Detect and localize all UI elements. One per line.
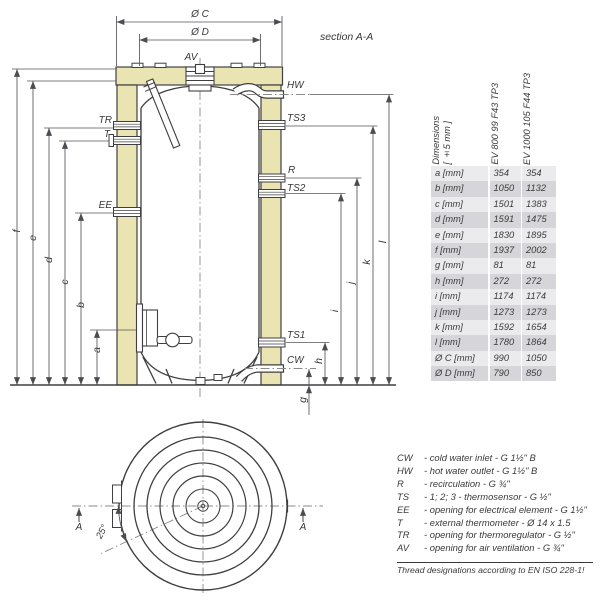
table-header-dim-line2: [ ±5 mm ] bbox=[442, 121, 452, 165]
legend-abbr: TS bbox=[397, 491, 424, 504]
table-cell: 354 bbox=[490, 166, 521, 181]
port-label-ts3: TS3 bbox=[287, 113, 305, 124]
table-header: Dimensions [ ±5 mm ] EV 800 99 F43 TP3 E… bbox=[431, 73, 557, 166]
table-cell: h [mm] bbox=[431, 274, 488, 289]
table-cell: g [mm] bbox=[431, 258, 488, 273]
av-fitting bbox=[186, 65, 214, 92]
legend-item: T- external thermometer - Ø 14 x 1.5 bbox=[397, 517, 595, 530]
legend-item: AV- opening for air ventilation - G ¾" bbox=[397, 542, 595, 555]
table-cell: Ø C [mm] bbox=[431, 351, 488, 366]
table-row: b [mm]10501132 bbox=[431, 181, 557, 196]
dim-letter-i: i bbox=[329, 304, 341, 318]
table-cell: 1864 bbox=[522, 335, 556, 350]
dim-letter-j: j bbox=[345, 276, 357, 290]
table-cell: 1780 bbox=[490, 335, 521, 350]
table-cell: a [mm] bbox=[431, 166, 488, 181]
dim-letter-a: a bbox=[91, 343, 103, 357]
legend-desc: - cold water inlet - G 1½" B bbox=[424, 452, 595, 465]
table-row: d [mm]15911475 bbox=[431, 212, 557, 227]
legend-desc: - hot water outlet - G 1½" B bbox=[424, 465, 595, 478]
table-cell: 354 bbox=[522, 166, 556, 181]
port-label-r: R bbox=[288, 165, 295, 176]
table-cell: 2002 bbox=[522, 243, 556, 258]
legend: CW- cold water inlet - G 1½" BHW- hot wa… bbox=[397, 452, 595, 575]
main-view bbox=[10, 58, 396, 400]
table-cell: k [mm] bbox=[431, 320, 488, 335]
table-cell: 272 bbox=[490, 274, 521, 289]
legend-desc: - external thermometer - Ø 14 x 1.5 bbox=[424, 517, 595, 530]
dim-label-od: Ø D bbox=[170, 27, 230, 38]
legend-desc: - opening for thermoregulator - G ½" bbox=[424, 529, 595, 542]
dim-letter-l: l bbox=[377, 235, 389, 249]
dim-letter-g: g bbox=[297, 393, 309, 407]
port-label-tr: TR bbox=[92, 115, 112, 126]
port-label-ee: EE bbox=[94, 200, 112, 211]
table-row: f [mm]19372002 bbox=[431, 243, 557, 258]
table-cell: 990 bbox=[490, 351, 521, 366]
table-row: g [mm]8181 bbox=[431, 258, 557, 273]
table-cell: 1895 bbox=[522, 228, 556, 243]
legend-abbr: AV bbox=[397, 542, 424, 555]
table-cell: 1830 bbox=[490, 228, 521, 243]
dim-letter-e: e bbox=[27, 231, 39, 245]
table-row: h [mm]272272 bbox=[431, 274, 557, 289]
port-label-cw: CW bbox=[287, 355, 304, 366]
table-cell: 1475 bbox=[522, 212, 556, 227]
table-header-model2: EV 1000 105 F44 TP3 bbox=[522, 73, 556, 170]
section-arrow-label-right: A bbox=[297, 522, 309, 533]
legend-item: CW- cold water inlet - G 1½" B bbox=[397, 452, 595, 465]
table-row: j [mm]12731273 bbox=[431, 305, 557, 320]
dimensions-table: Dimensions [ ±5 mm ] EV 800 99 F43 TP3 E… bbox=[431, 73, 557, 381]
legend-abbr: EE bbox=[397, 504, 424, 517]
table-cell: 1174 bbox=[490, 289, 521, 304]
table-cell: 790 bbox=[490, 366, 521, 381]
table-header-model1: EV 800 99 F43 TP3 bbox=[490, 73, 521, 170]
table-row: Ø C [mm]9901050 bbox=[431, 351, 557, 366]
port-label-ts2: TS2 bbox=[287, 183, 305, 194]
port-label-hw: HW bbox=[287, 80, 304, 91]
legend-desc: - recirculation - G ¾" bbox=[424, 478, 595, 491]
table-header-dim-line1: Dimensions bbox=[431, 116, 441, 165]
legend-abbr: R bbox=[397, 478, 424, 491]
table-cell: b [mm] bbox=[431, 181, 488, 196]
legend-desc: - 1; 2; 3 - thermosensor - G ½" bbox=[424, 491, 595, 504]
legend-item: EE- opening for electrical element - G 1… bbox=[397, 504, 595, 517]
table-cell: 1050 bbox=[490, 181, 521, 196]
table-row: e [mm]18301895 bbox=[431, 228, 557, 243]
table-cell: Ø D [mm] bbox=[431, 366, 488, 381]
port-label-av: AV bbox=[176, 52, 206, 63]
table-row: i [mm]11741174 bbox=[431, 289, 557, 304]
legend-item: TR- opening for thermoregulator - G ½" bbox=[397, 529, 595, 542]
port-label-t: T bbox=[98, 129, 110, 140]
legend-abbr: TR bbox=[397, 529, 424, 542]
thermometer-well bbox=[144, 79, 180, 148]
table-cell: f [mm] bbox=[431, 243, 488, 258]
table-cell: j [mm] bbox=[431, 305, 488, 320]
dimensions-table-rows: a [mm]354354b [mm]10501132c [mm]15011383… bbox=[431, 166, 557, 381]
legend-abbr: HW bbox=[397, 465, 424, 478]
electrical-element bbox=[137, 304, 193, 352]
dim-letter-k: k bbox=[361, 255, 373, 269]
table-cell: 1174 bbox=[522, 289, 556, 304]
legend-desc: - opening for air ventilation - G ¾" bbox=[424, 542, 595, 555]
table-header-dimensions: Dimensions [ ±5 mm ] bbox=[431, 73, 488, 170]
table-row: k [mm]15921654 bbox=[431, 320, 557, 335]
dim-label-oc: Ø C bbox=[170, 9, 230, 20]
table-cell: c [mm] bbox=[431, 197, 488, 212]
table-cell: 1937 bbox=[490, 243, 521, 258]
water-heater-datasheet: Ø C Ø D AV section A-A TR T EE HW TS3 R … bbox=[0, 0, 600, 600]
legend-divider bbox=[397, 562, 593, 563]
table-cell: 1132 bbox=[522, 181, 556, 196]
dim-letter-d: d bbox=[43, 253, 55, 267]
table-cell: 1273 bbox=[522, 305, 556, 320]
legend-item: HW- hot water outlet - G 1½" B bbox=[397, 465, 595, 478]
table-row: c [mm]15011383 bbox=[431, 197, 557, 212]
table-cell: 1273 bbox=[490, 305, 521, 320]
table-cell: l [mm] bbox=[431, 335, 488, 350]
section-title: section A-A bbox=[320, 31, 373, 43]
table-cell: 1050 bbox=[522, 351, 556, 366]
dim-letter-b: b bbox=[75, 298, 87, 312]
legend-footnote: Thread designations according to EN ISO … bbox=[397, 565, 595, 575]
legend-desc: - opening for electrical element - G 1½" bbox=[424, 504, 595, 517]
table-cell: e [mm] bbox=[431, 228, 488, 243]
table-cell: 81 bbox=[522, 258, 556, 273]
table-cell: d [mm] bbox=[431, 212, 488, 227]
port-label-ts1: TS1 bbox=[287, 330, 305, 341]
dim-letter-c: c bbox=[59, 275, 71, 289]
legend-abbr: T bbox=[397, 517, 424, 530]
table-cell: 81 bbox=[490, 258, 521, 273]
table-cell: 1591 bbox=[490, 212, 521, 227]
legend-abbr: CW bbox=[397, 452, 424, 465]
dim-letter-h: h bbox=[313, 354, 325, 368]
table-cell: 1592 bbox=[490, 320, 521, 335]
table-row: l [mm]17801864 bbox=[431, 335, 557, 350]
section-view bbox=[72, 419, 323, 593]
section-arrow-label-left: A bbox=[73, 522, 85, 533]
legend-item: R- recirculation - G ¾" bbox=[397, 478, 595, 491]
table-row: Ø D [mm]790850 bbox=[431, 366, 557, 381]
table-cell: 272 bbox=[522, 274, 556, 289]
table-cell: 850 bbox=[522, 366, 556, 381]
legend-items: CW- cold water inlet - G 1½" BHW- hot wa… bbox=[397, 452, 595, 555]
table-cell: 1654 bbox=[522, 320, 556, 335]
legend-item: TS- 1; 2; 3 - thermosensor - G ½" bbox=[397, 491, 595, 504]
table-cell: 1383 bbox=[522, 197, 556, 212]
table-cell: 1501 bbox=[490, 197, 521, 212]
table-row: a [mm]354354 bbox=[431, 166, 557, 181]
table-cell: i [mm] bbox=[431, 289, 488, 304]
dim-letter-f: f bbox=[11, 224, 23, 238]
